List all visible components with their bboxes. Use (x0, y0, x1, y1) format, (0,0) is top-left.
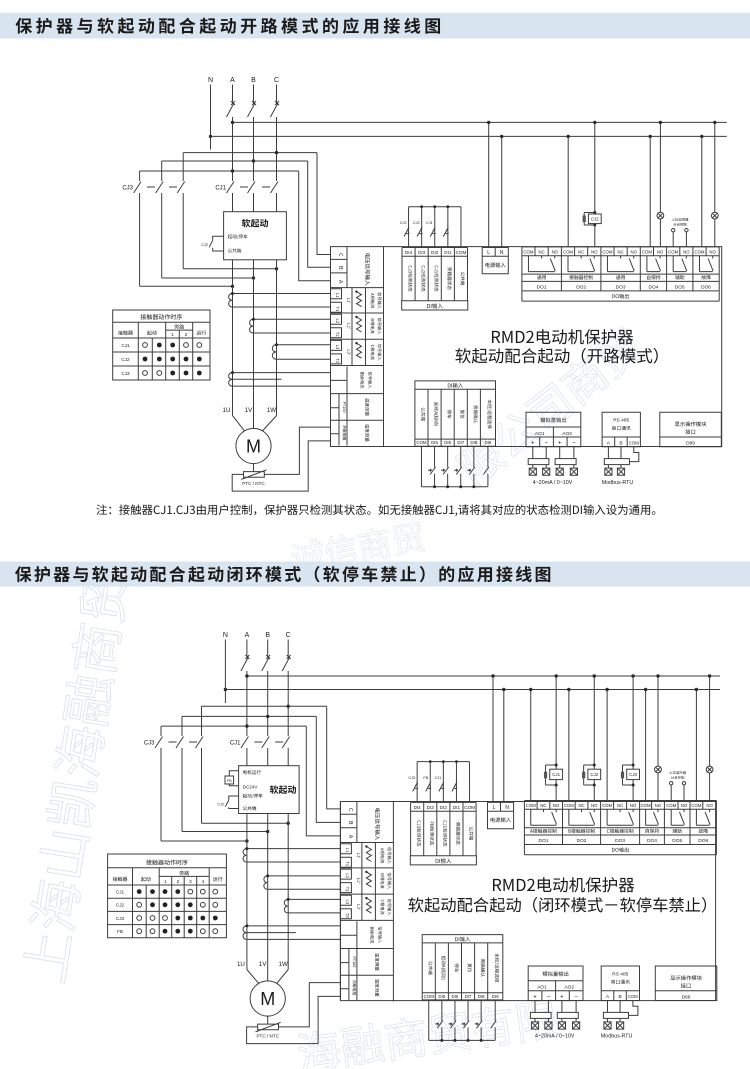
svg-text:1W: 1W (279, 961, 288, 968)
svg-text:DO4: DO4 (647, 838, 657, 844)
svg-text:3: 3 (189, 879, 192, 884)
svg-text:DO5: DO5 (672, 838, 682, 844)
svg-text:CJ2: CJ2 (591, 217, 599, 222)
svg-text:DO2: DO2 (577, 838, 587, 844)
svg-text:NC: NC (538, 249, 544, 254)
svg-text:DI9: DI9 (484, 440, 491, 445)
svg-text:4~20mA / 0~10V: 4~20mA / 0~10V (535, 1034, 575, 1040)
svg-text:COM: COM (563, 249, 573, 254)
svg-text:CJ2: CJ2 (121, 357, 130, 362)
svg-text:CJ2: CJ2 (201, 243, 208, 247)
svg-text:NO: NO (706, 803, 713, 808)
svg-text:A: A (606, 994, 610, 1000)
svg-text:CJ2: CJ2 (590, 772, 598, 777)
svg-text:DI2: DI2 (431, 250, 439, 255)
svg-text:DI9: DI9 (492, 994, 499, 999)
svg-text:NO: NO (657, 249, 664, 254)
svg-text:RS 485: RS 485 (612, 971, 628, 977)
svg-text:−: − (547, 994, 551, 1000)
svg-text:CJ1: CJ1 (230, 741, 241, 747)
svg-text:2: 2 (177, 879, 180, 884)
svg-text:DI1: DI1 (453, 805, 461, 810)
svg-text:DI3: DI3 (418, 250, 426, 255)
svg-text:DO6: DO6 (701, 284, 711, 290)
svg-text:AO1: AO1 (537, 985, 547, 991)
svg-text:COM: COM (641, 803, 651, 808)
svg-text:NO: NO (630, 803, 637, 808)
svg-text:CJ1: CJ1 (116, 889, 125, 894)
svg-text:COM: COM (602, 249, 612, 254)
svg-text:COM: COM (694, 249, 704, 254)
svg-text:+: + (558, 441, 562, 447)
svg-text:1W: 1W (267, 407, 276, 414)
svg-text:COM: COM (424, 994, 435, 999)
svg-text:DO1: DO1 (539, 838, 549, 844)
svg-text:1: 1 (164, 879, 167, 884)
svg-text:DI2: DI2 (440, 805, 448, 810)
svg-text:N: N (223, 632, 228, 639)
svg-text:RS 485: RS 485 (613, 418, 629, 424)
svg-text:CJ3: CJ3 (116, 916, 125, 921)
svg-text:NO: NO (553, 803, 560, 808)
svg-text:NC: NC (617, 803, 623, 808)
svg-text:B: B (265, 632, 270, 639)
svg-text:CJ1: CJ1 (552, 772, 560, 777)
svg-text:DI4: DI4 (405, 250, 413, 255)
svg-text:DC24V: DC24V (243, 784, 259, 789)
svg-text:NO: NO (709, 249, 716, 254)
svg-text:1: 1 (171, 332, 174, 337)
svg-text:4: 4 (202, 879, 205, 884)
svg-text:COM: COM (416, 440, 427, 445)
svg-text:COM: COM (666, 803, 676, 808)
svg-text:C: C (274, 77, 279, 84)
svg-text:DI3: DI3 (427, 805, 435, 810)
svg-text:D89: D89 (686, 441, 695, 447)
svg-text:NO: NO (683, 249, 690, 254)
svg-text:DI8: DI8 (478, 994, 485, 999)
svg-text:L: L (493, 805, 496, 811)
svg-text:2: 2 (185, 332, 188, 337)
svg-text:CJ2: CJ2 (217, 803, 224, 807)
svg-text:FB: FB (117, 929, 123, 934)
svg-text:CJ1: CJ1 (426, 221, 433, 225)
svg-text:NO: NO (631, 249, 638, 254)
svg-text:DO2: DO2 (576, 284, 586, 290)
svg-text:NO: NO (681, 803, 688, 808)
svg-text:COM: COM (456, 250, 467, 255)
svg-text:DI6: DI6 (452, 994, 459, 999)
svg-text:Modbus-RTU: Modbus-RTU (601, 1034, 633, 1040)
svg-text:COM: COM (691, 803, 701, 808)
svg-text:DI5: DI5 (431, 440, 438, 445)
svg-text:CJ3: CJ3 (144, 741, 155, 747)
svg-text:CJ3: CJ3 (408, 776, 415, 780)
svg-text:N: N (505, 805, 509, 811)
svg-text:1V: 1V (245, 407, 253, 414)
svg-text:Modbus-RTU: Modbus-RTU (602, 480, 634, 486)
svg-text:AO1: AO1 (535, 431, 545, 437)
svg-text:COM: COM (526, 803, 536, 808)
svg-text:PTC / NTC: PTC / NTC (256, 1034, 279, 1039)
svg-text:M: M (260, 989, 275, 1009)
svg-text:CJ3: CJ3 (122, 186, 133, 192)
svg-text:C: C (286, 632, 291, 639)
svg-text:CJ3: CJ3 (121, 371, 130, 376)
svg-text:N: N (500, 250, 504, 256)
svg-text:1U: 1U (223, 407, 231, 414)
svg-text:CJ2: CJ2 (413, 221, 420, 225)
svg-text:N: N (208, 77, 213, 84)
svg-text:−: − (574, 994, 578, 1000)
svg-text:NC: NC (578, 249, 584, 254)
svg-text:DO4: DO4 (649, 284, 659, 290)
svg-text:DI5: DI5 (438, 994, 445, 999)
svg-text:A: A (245, 632, 250, 639)
svg-text:AO2: AO2 (562, 431, 572, 437)
svg-text:FB: FB (227, 779, 232, 783)
svg-text:COM: COM (602, 803, 612, 808)
svg-text:+: + (560, 994, 564, 1000)
svg-text:COM: COM (642, 249, 652, 254)
svg-text:FB: FB (423, 776, 428, 780)
svg-text:AO2: AO2 (564, 985, 574, 991)
svg-text:DI7: DI7 (457, 440, 464, 445)
svg-text:COM: COM (628, 994, 638, 999)
svg-text:DO6: DO6 (698, 838, 708, 844)
svg-text:A: A (607, 440, 611, 446)
svg-text:DI8: DI8 (470, 440, 477, 445)
svg-text:NO: NO (655, 803, 662, 808)
svg-text:DI7: DI7 (465, 994, 472, 999)
svg-text:1U: 1U (237, 961, 245, 968)
svg-text:DO5: DO5 (675, 284, 685, 290)
svg-text:COM: COM (629, 440, 639, 445)
svg-text:DO3: DO3 (615, 838, 625, 844)
svg-text:DO1: DO1 (537, 284, 547, 290)
svg-text:COM: COM (668, 249, 678, 254)
svg-text:B: B (619, 440, 622, 446)
svg-text:DO3: DO3 (616, 284, 626, 290)
svg-text:B: B (251, 77, 256, 84)
svg-text:−: − (544, 441, 548, 447)
svg-text:−: − (572, 441, 576, 447)
svg-text:NO: NO (591, 249, 598, 254)
svg-text:1V: 1V (259, 961, 267, 968)
svg-text:+: + (533, 994, 537, 1000)
svg-text:CJ1: CJ1 (435, 776, 442, 780)
svg-text:PTC / NTC: PTC / NTC (242, 481, 265, 486)
svg-text:NC: NC (540, 803, 546, 808)
svg-text:B: B (618, 994, 621, 1000)
svg-text:DI1: DI1 (444, 250, 452, 255)
svg-text:NC: NC (578, 803, 584, 808)
svg-text:NC: NC (617, 249, 623, 254)
svg-text:CJ1: CJ1 (121, 343, 130, 348)
svg-text:A: A (230, 77, 235, 84)
svg-text:COM: COM (464, 805, 475, 810)
svg-text:DI6: DI6 (444, 440, 451, 445)
svg-text:D89: D89 (682, 994, 691, 1000)
svg-text:DI4: DI4 (414, 805, 422, 810)
svg-text:NO: NO (552, 249, 559, 254)
svg-text:COM: COM (523, 249, 533, 254)
svg-text:CJ1: CJ1 (215, 186, 226, 192)
svg-text:M: M (246, 436, 261, 456)
svg-text:CJ3: CJ3 (400, 221, 407, 225)
svg-text:+: + (531, 441, 535, 447)
svg-text:NO: NO (591, 803, 598, 808)
svg-text:L: L (487, 250, 490, 256)
svg-text:COM: COM (564, 803, 574, 808)
svg-text:4~20mA / 0~10V: 4~20mA / 0~10V (533, 480, 573, 486)
svg-text:CJ3: CJ3 (629, 772, 637, 777)
svg-text:CJ2: CJ2 (116, 903, 125, 908)
